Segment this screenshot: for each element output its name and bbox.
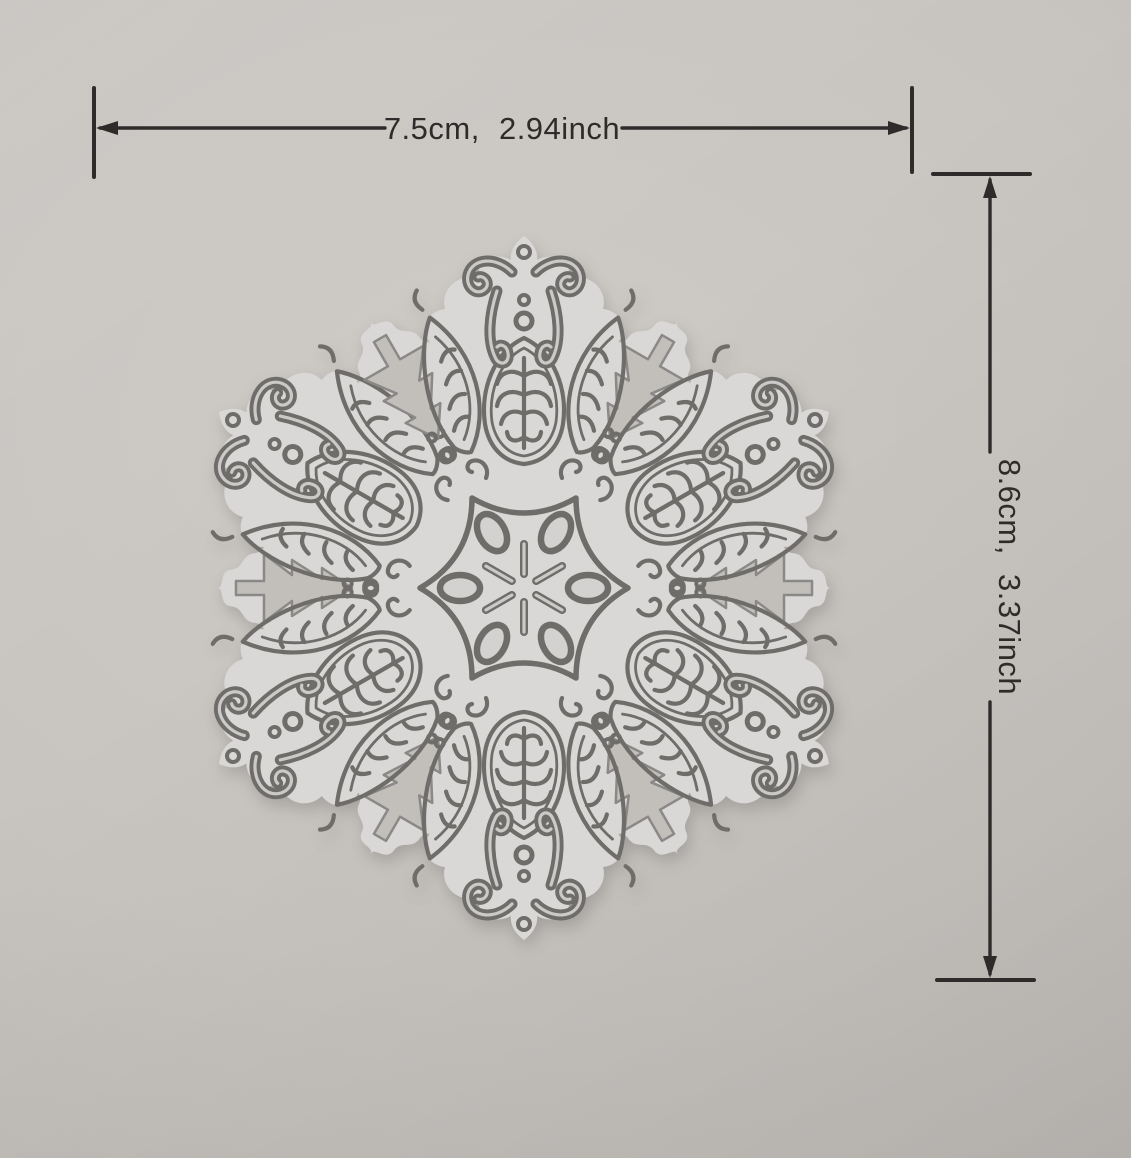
arrow-right-icon	[888, 121, 910, 135]
horizontal-dimension: 7.5cm, 2.94inch	[94, 88, 912, 177]
arrow-left-icon	[96, 121, 118, 135]
arrow-up-icon	[983, 176, 997, 198]
product-photo: 7.5cm, 2.94inch 8.6cm, 3.37inch	[0, 0, 1131, 1158]
vertical-dimension: 8.6cm, 3.37inch	[933, 174, 1034, 980]
width-dimension-label: 7.5cm, 2.94inch	[384, 111, 620, 146]
height-dimension-label: 8.6cm, 3.37inch	[992, 459, 1027, 695]
snowflake-die	[118, 226, 931, 950]
product-photo-background: 7.5cm, 2.94inch 8.6cm, 3.37inch	[0, 0, 1131, 1158]
arrow-down-icon	[983, 956, 997, 978]
